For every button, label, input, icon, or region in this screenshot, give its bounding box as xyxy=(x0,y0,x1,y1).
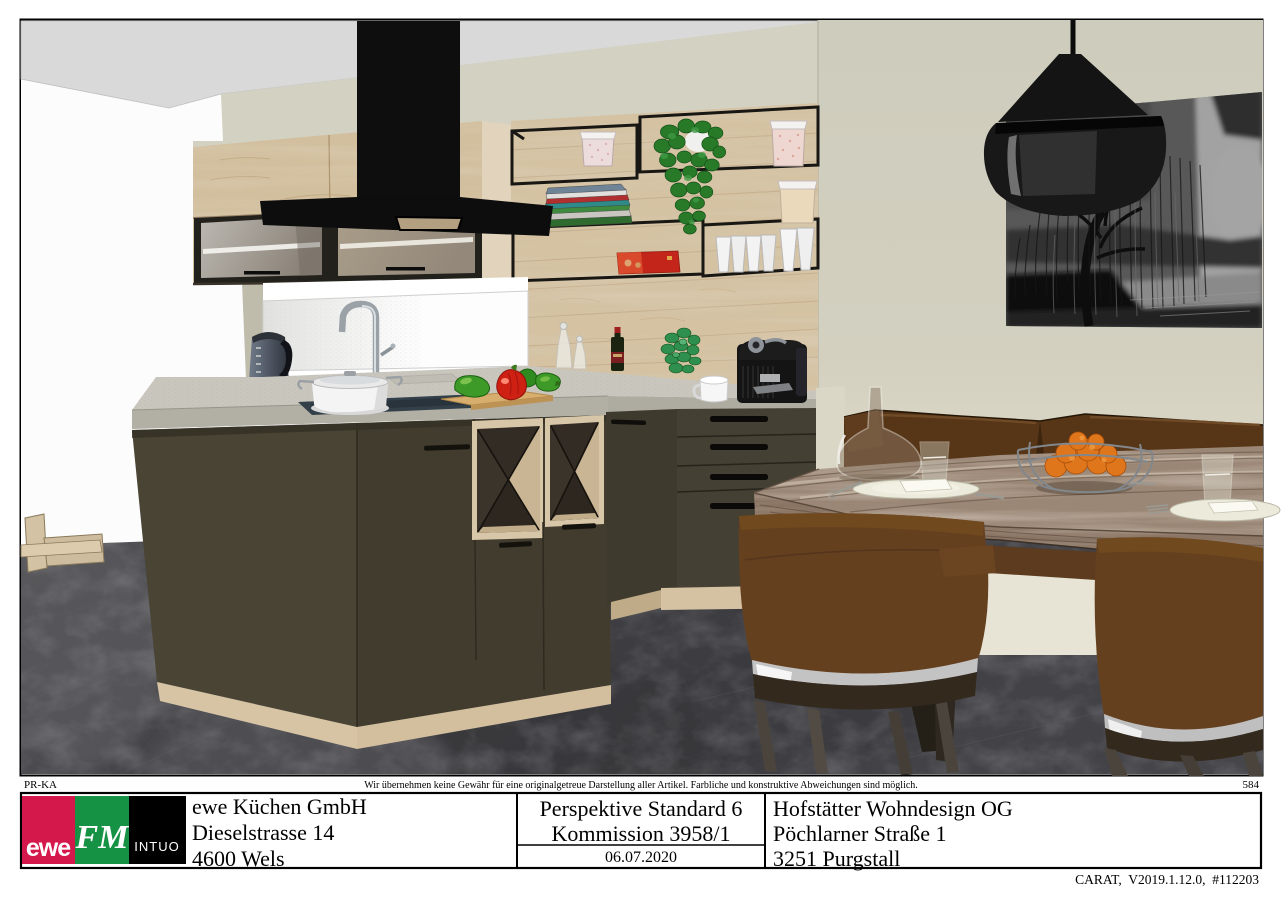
svg-text:4600 Wels: 4600 Wels xyxy=(192,846,285,871)
svg-text:FM: FM xyxy=(75,819,131,856)
svg-text:INTUO: INTUO xyxy=(134,839,179,854)
svg-text:Kommission 3958/1: Kommission 3958/1 xyxy=(551,821,730,846)
svg-text:ewe Küchen GmbH: ewe Küchen GmbH xyxy=(192,794,367,819)
svg-text:Dieselstrasse 14: Dieselstrasse 14 xyxy=(192,820,334,845)
svg-text:CARAT, V2019.1.12.0, #112203: CARAT, V2019.1.12.0, #112203 xyxy=(1075,872,1259,887)
svg-text:3251 Purgstall: 3251 Purgstall xyxy=(773,846,900,871)
svg-text:06.07.2020: 06.07.2020 xyxy=(605,849,677,866)
svg-text:Wir übernehmen keine Gewähr fü: Wir übernehmen keine Gewähr für eine ori… xyxy=(364,780,918,791)
svg-text:584: 584 xyxy=(1243,779,1260,791)
svg-text:Hofstätter Wohndesign OG: Hofstätter Wohndesign OG xyxy=(773,796,1013,821)
svg-text:ewe: ewe xyxy=(26,834,71,862)
svg-text:Perspektive Standard 6: Perspektive Standard 6 xyxy=(540,796,743,821)
svg-text:Pöchlarner Straße 1: Pöchlarner Straße 1 xyxy=(773,821,947,846)
svg-text:PR-KA: PR-KA xyxy=(24,779,57,791)
